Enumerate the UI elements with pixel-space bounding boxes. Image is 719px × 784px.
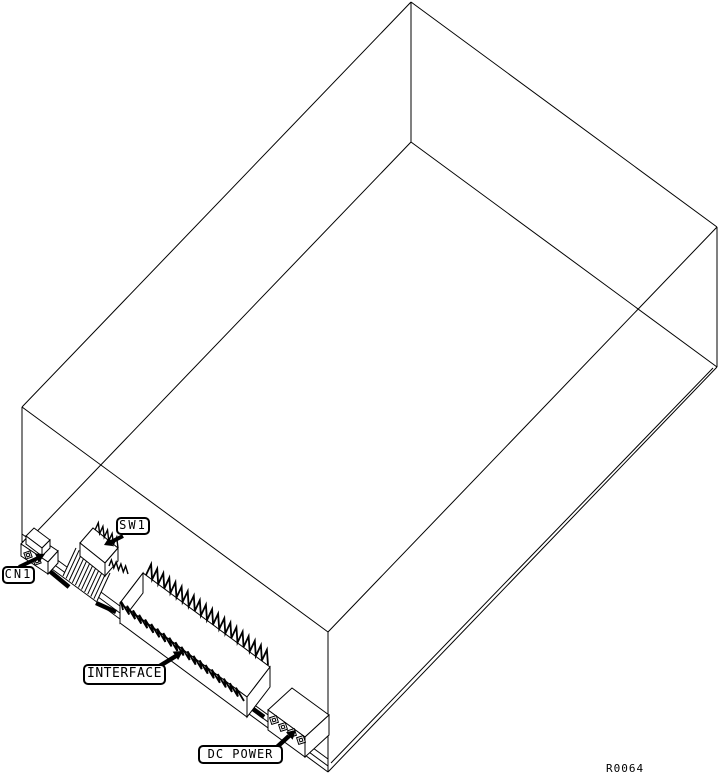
dc-power-label: DC POWER	[198, 745, 283, 764]
interface-connector	[120, 564, 270, 717]
cn1-label: CN1	[2, 566, 35, 584]
chassis-wireframe	[22, 2, 717, 772]
figure-number: R0064	[606, 762, 644, 775]
interface-label: INTERFACE	[83, 664, 166, 685]
drive-isometric-diagram: CN1 SW1 INTERFACE DC POWER R0064	[0, 0, 719, 784]
sw1-label: SW1	[116, 517, 150, 535]
